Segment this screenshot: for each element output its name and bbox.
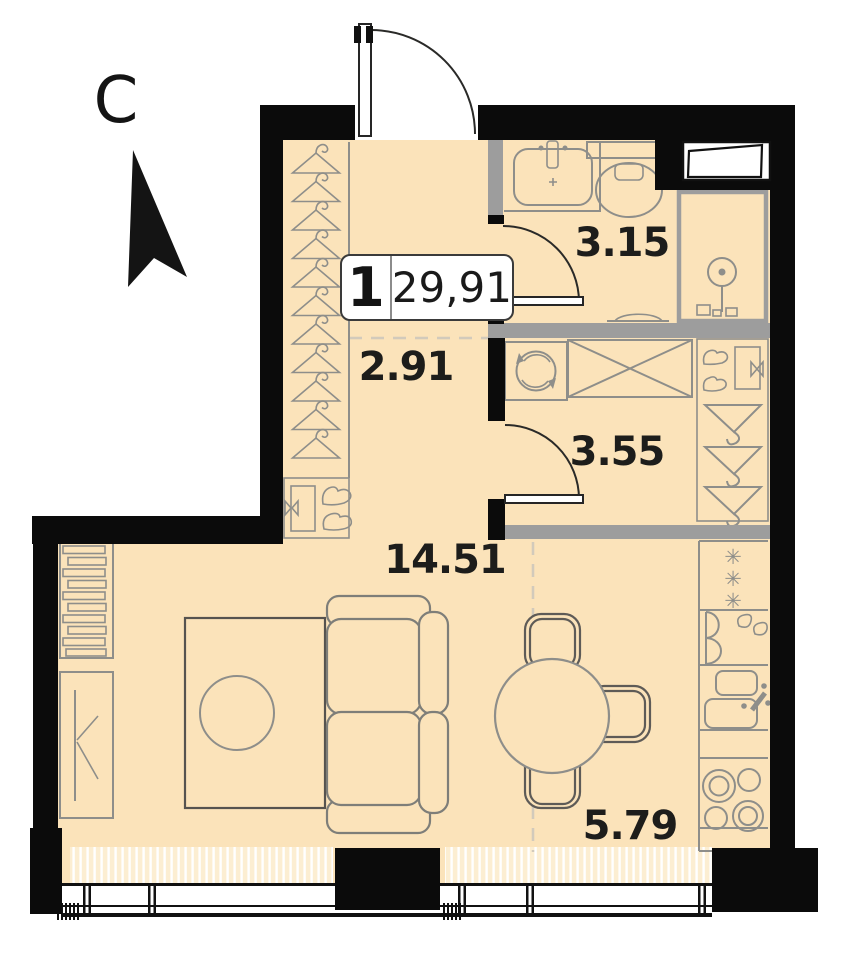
north-arrow-icon bbox=[128, 150, 187, 287]
window-pier bbox=[335, 848, 440, 910]
entry-door bbox=[354, 24, 475, 136]
corner-pier bbox=[712, 848, 818, 912]
snowflake-icon: ✳ bbox=[712, 568, 754, 590]
snowflake-icon: ✳ bbox=[712, 546, 754, 568]
sofa-backrest bbox=[419, 712, 448, 813]
apartment-total-area: 29,91 bbox=[392, 256, 512, 319]
sofa-backrest bbox=[419, 612, 448, 714]
dining-table bbox=[495, 659, 609, 773]
area-label-kitchen: 5.79 bbox=[583, 803, 678, 849]
fridge-icon: ✳ ✳ ✳ bbox=[712, 546, 754, 612]
sofa-seat bbox=[327, 712, 421, 805]
partition-bathroom bbox=[488, 140, 503, 215]
area-label-utility: 3.55 bbox=[570, 429, 665, 475]
area-label-living: 14.51 bbox=[384, 537, 506, 583]
bathroom-window bbox=[683, 142, 770, 180]
compass-letter: С bbox=[94, 64, 139, 138]
snowflake-icon: ✳ bbox=[712, 590, 754, 612]
floor-plan: С 1 29,91 3.15 3.55 2.91 14.51 5.79 ✳ ✳ … bbox=[0, 0, 845, 973]
door-leaf bbox=[505, 297, 583, 305]
door-leaf bbox=[505, 495, 583, 503]
floor-hallway bbox=[283, 140, 489, 544]
sofa-seat bbox=[327, 619, 421, 714]
sofa bbox=[327, 596, 448, 833]
apartment-rooms-count: 1 bbox=[342, 256, 392, 319]
floor-plan-drawing bbox=[0, 0, 845, 973]
area-label-bathroom: 3.15 bbox=[575, 220, 670, 266]
door-swing-arc bbox=[371, 30, 475, 134]
partition-band-upper bbox=[488, 323, 770, 338]
partition-band-lower bbox=[505, 525, 770, 539]
radiator-strip-living bbox=[70, 847, 333, 885]
apartment-tag: 1 29,91 bbox=[340, 254, 514, 321]
radiator-strip-kitchen bbox=[445, 847, 712, 885]
area-label-hallway: 2.91 bbox=[359, 344, 454, 390]
